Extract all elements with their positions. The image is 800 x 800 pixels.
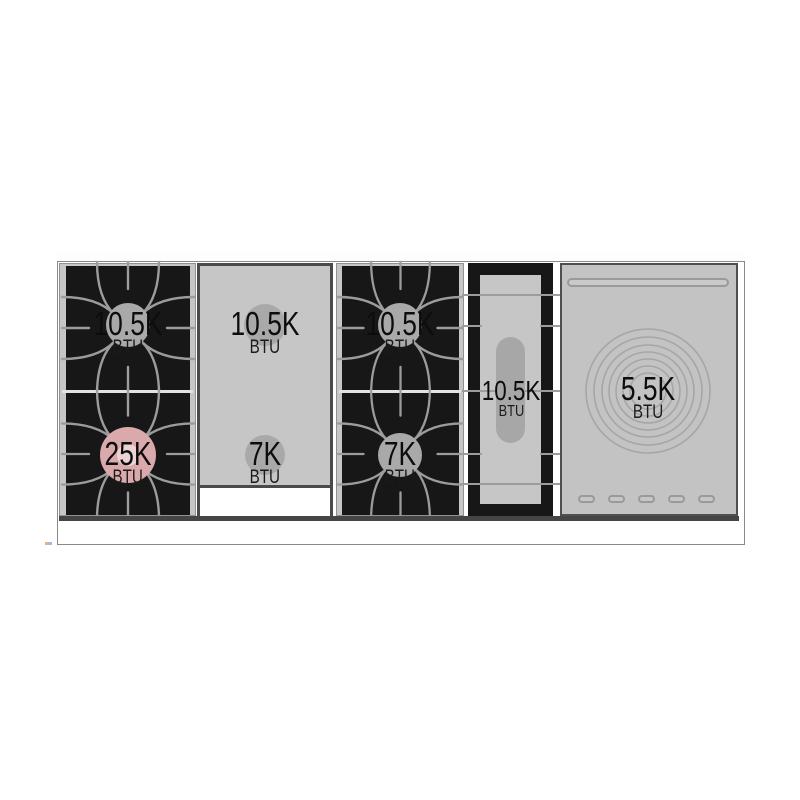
btu-label-left-top: 10.5K BTU [85, 309, 171, 356]
grate-tick [540, 325, 560, 327]
front-edge-band [59, 516, 739, 521]
grate-bar [462, 483, 560, 485]
btu-value: 10.5K [85, 309, 171, 339]
btu-label-french-top: 5.5K BTU [614, 374, 682, 421]
vent-slot [698, 495, 715, 503]
btu-label-griddle-top: 10.5K BTU [222, 309, 308, 356]
btu-unit: BTU [245, 469, 285, 486]
grate-tick [462, 453, 482, 455]
btu-value: 10.5K [222, 309, 308, 339]
btu-value: 7K [380, 439, 420, 469]
btu-value: 10.5K [474, 378, 547, 404]
griddle-front-strip [197, 488, 333, 517]
btu-label-oval: 10.5K BTU [474, 378, 547, 419]
btu-label-left-bottom: 25K BTU [99, 439, 158, 486]
vent-slot [578, 495, 595, 503]
grate-bar [462, 294, 560, 296]
grate-tick [462, 325, 482, 327]
rangetop-spec-diagram: 10.5K BTU 25K BTU 10.5K BTU 7K BTU 10.5K… [0, 0, 800, 800]
french-top-groove [567, 278, 729, 287]
btu-label-center-top: 10.5K BTU [357, 309, 443, 356]
btu-value: 10.5K [357, 309, 443, 339]
btu-label-center-bottom: 7K BTU [380, 439, 420, 486]
scan-artifact [45, 542, 52, 545]
vent-slot [668, 495, 685, 503]
vent-slot [608, 495, 625, 503]
btu-value: 5.5K [614, 374, 682, 404]
btu-value: 7K [245, 439, 285, 469]
vent-slot [638, 495, 655, 503]
btu-unit: BTU [380, 469, 420, 486]
btu-value: 25K [99, 439, 158, 469]
btu-label-griddle-bottom: 7K BTU [245, 439, 285, 486]
grate-tick [540, 453, 560, 455]
btu-unit: BTU [474, 404, 547, 419]
